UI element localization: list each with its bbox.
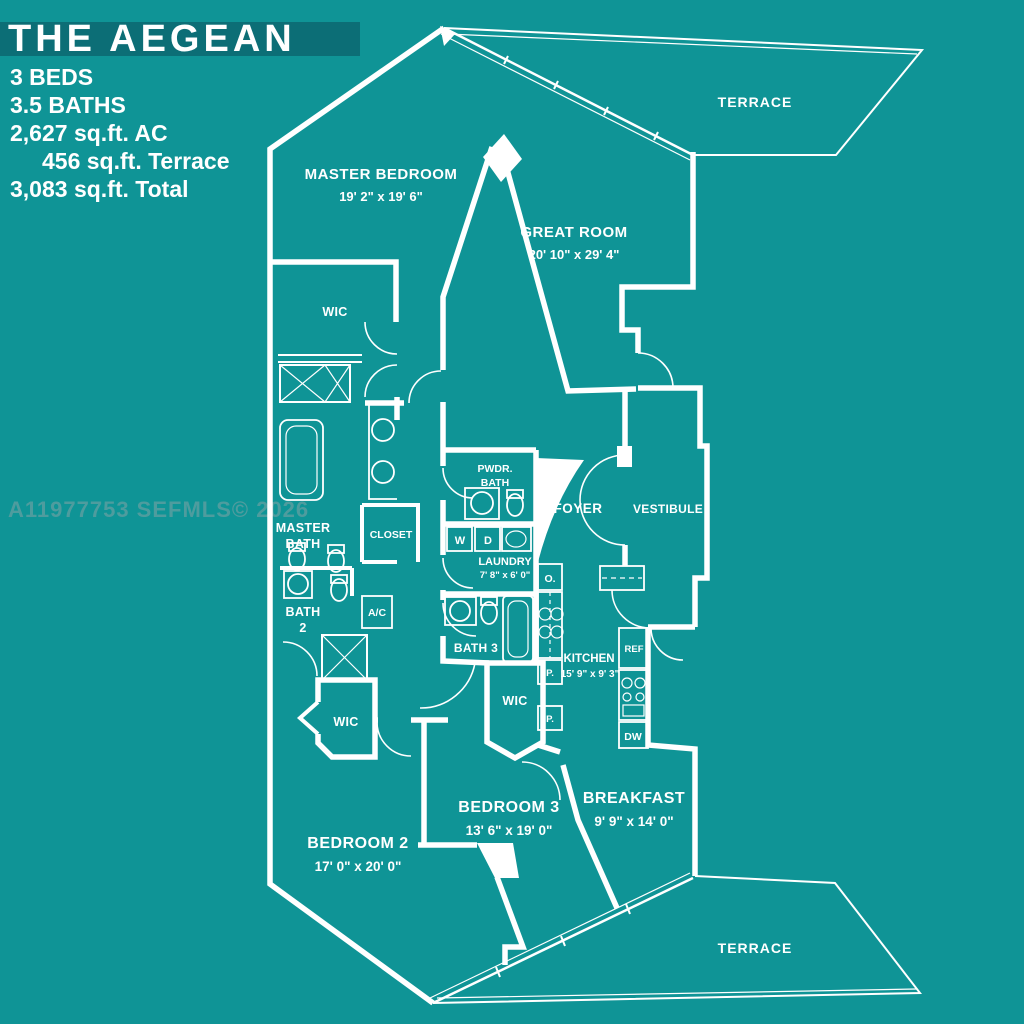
floor-plan-drawing: THE AEGEAN 3 BEDS 3.5 BATHS 2,627 sq.ft.… [0,0,1024,1024]
shaft-hatch-lower [322,635,367,680]
door-wic-master-2 [365,365,397,397]
dims-great-room: 20' 10" x 29' 4" [529,247,620,262]
fixtures-layer [280,365,648,748]
dims-bedroom2: 17' 0" x 20' 0" [315,859,402,874]
dims-laundry: 7' 8" x 6' 0" [480,570,531,581]
door-bath2 [283,642,317,676]
sink-master-2 [372,461,394,483]
label-closet: CLOSET [370,529,413,541]
label-pantry-lower: P. [546,714,554,725]
stat-baths: 3.5 BATHS [10,92,126,118]
wall-diagonals [443,147,636,450]
door-hall [420,663,475,708]
label-oven: O. [544,573,555,585]
door-laundry [443,558,473,588]
floor-plan-page: THE AEGEAN 3 BEDS 3.5 BATHS 2,627 sq.ft.… [0,0,1024,1024]
window-ticks-bottom [496,904,630,977]
dims-breakfast: 9' 9" x 14' 0" [594,814,673,829]
label-pantry-upper: P. [546,668,554,679]
dims-bedroom3: 13' 6" x 19' 0" [466,823,553,838]
dims-kitchen: 15' 9" x 9' 3" [561,669,620,680]
label-wic-master: WIC [322,305,347,319]
door-bedroom2 [377,722,411,756]
door-kitchen [612,590,650,628]
terrace-top-outline [441,28,922,160]
wall-bedrooms [375,720,617,965]
sink-bath2 [288,574,308,594]
label-master-bedroom: MASTER BEDROOM [305,166,458,183]
sink-pwdr [471,492,493,514]
sink-master-1 [372,419,394,441]
stat-beds: 3 BEDS [10,64,93,90]
label-foyer: FOYER [553,501,602,516]
door-bath3 [443,603,476,636]
label-wic-bedroom3: WIC [502,694,527,708]
label-dryer: D [484,535,492,547]
stat-area-total: 3,083 sq.ft. Total [10,176,189,202]
door-pwdr [443,468,473,498]
wall-wic-bedroom3 [487,663,543,758]
label-pwdr-2: BATH [481,477,509,489]
stat-area-ac: 2,627 sq.ft. AC [10,120,168,146]
label-bath2-2: 2 [299,621,306,635]
sink-bath3 [450,601,470,621]
dims-master-bedroom: 19' 2" x 19' 6" [339,189,423,204]
plan-title: THE AEGEAN [8,18,296,60]
label-vestibule: VESTIBULE [633,502,703,516]
shaft-hatch-upper [280,365,350,402]
wic2-entry-chevron [300,702,318,734]
label-great-room: GREAT ROOM [520,224,627,241]
label-bath3: BATH 3 [454,641,498,655]
column-notch-bottom [477,843,519,878]
label-dishwasher: DW [624,731,642,743]
label-master-bath-2: BATH [286,537,321,551]
door-vestibule [638,353,673,388]
label-laundry: LAUNDRY [478,556,532,568]
label-bedroom2: BEDROOM 2 [307,835,408,852]
stat-area-terrace: 456 sq.ft. Terrace [42,148,230,174]
mls-watermark: A11977753 SEFMLS© 2026 [8,497,309,522]
wall-double-below-wic [278,355,362,362]
label-breakfast: BREAKFAST [583,790,685,807]
label-bedroom3: BEDROOM 3 [458,799,559,816]
toilet-bath3 [481,597,497,624]
label-washer: W [455,535,466,547]
toilet-bath2 [331,575,347,601]
door-master-bedroom [409,371,441,403]
label-kitchen: KITCHEN [563,653,614,665]
foyer-wall-return [617,446,632,467]
label-wic-bedroom2: WIC [333,715,358,729]
label-master-bath-1: MASTER [276,521,331,535]
column-notch-top [483,134,522,182]
label-terrace-bottom: TERRACE [718,940,793,956]
label-pwdr-1: PWDR. [478,463,513,475]
label-refrigerator: REF [625,644,644,655]
wall-master-wic [272,262,404,420]
door-breakfast [651,628,683,660]
label-bath2-1: BATH [286,605,321,619]
toilet-pwdr [507,490,523,516]
door-bedroom3 [522,762,560,800]
label-ac: A/C [368,607,387,619]
label-terrace-top: TERRACE [718,94,793,110]
door-wic-master-1 [365,322,397,354]
